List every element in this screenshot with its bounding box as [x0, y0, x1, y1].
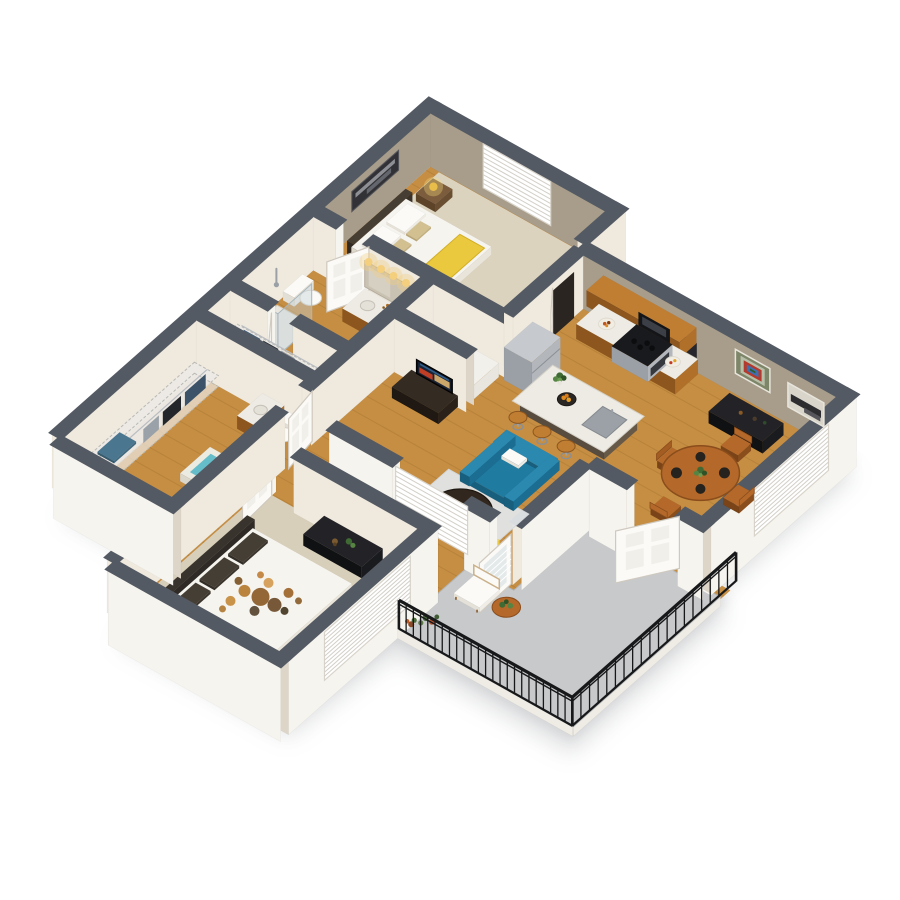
- bath2-sink: [254, 405, 268, 414]
- shower-head: [274, 282, 279, 287]
- master-nightstand-lamp: [424, 177, 443, 196]
- counter-plate-2: [665, 357, 680, 368]
- counter-plate-1: [599, 318, 616, 330]
- master-sink-1: [360, 301, 374, 311]
- floorplan-scene: [0, 0, 900, 900]
- floorplan-3d-render: 3D isometric cutaway floor plan renderin…: [0, 0, 900, 900]
